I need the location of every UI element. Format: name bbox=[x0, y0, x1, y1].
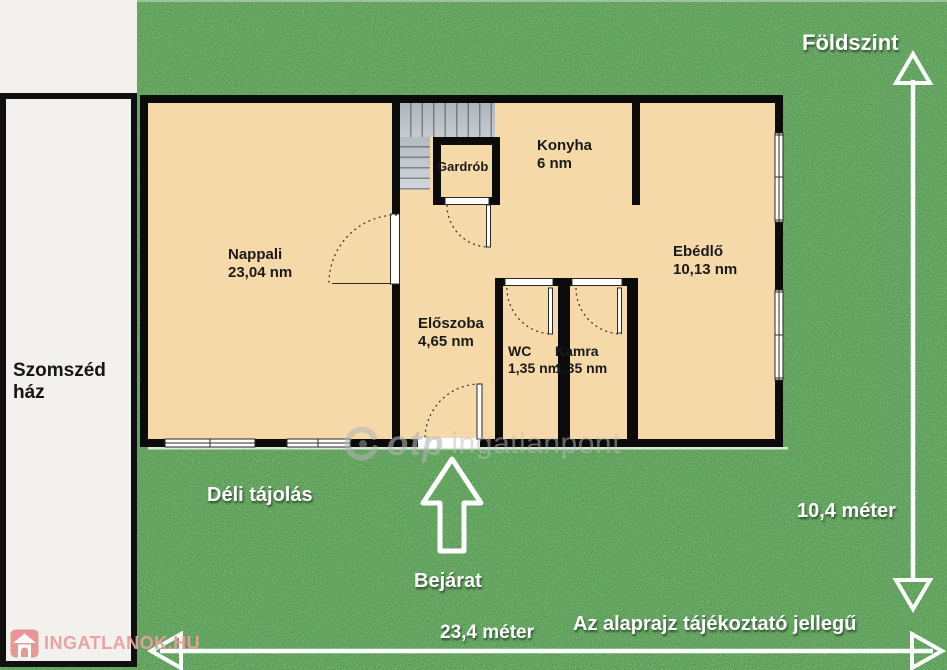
site-logo: INGATLANOK.HU bbox=[10, 629, 200, 658]
room-area: 23,04 nm bbox=[228, 264, 292, 282]
room-name: Kamra bbox=[555, 343, 607, 360]
room-label-gardrob: Gardrób bbox=[437, 159, 488, 175]
wall-nappali-bottom bbox=[392, 283, 400, 439]
room-area: 4,65 nm bbox=[418, 333, 484, 351]
house-icon bbox=[10, 629, 39, 658]
entrance-arrow-icon bbox=[423, 459, 481, 551]
room-area: 10,13 nm bbox=[673, 261, 737, 279]
entrance-label: Bejárat bbox=[414, 570, 482, 593]
floor-title: Földszint bbox=[802, 30, 899, 56]
watermark-brand: otp bbox=[387, 424, 444, 464]
wall-konyha-ebedlo bbox=[632, 103, 640, 205]
watermark-logo-icon bbox=[344, 426, 380, 462]
room-name: Előszoba bbox=[418, 315, 484, 333]
neighbor-house-label: Szomszéd ház bbox=[13, 360, 106, 404]
wall-kamra-right bbox=[627, 286, 638, 439]
room-name: Konyha bbox=[537, 137, 592, 155]
horizontal-measure-arrow bbox=[151, 634, 942, 668]
orientation-label: Déli tájolás bbox=[207, 484, 313, 507]
watermark: otp ingatlanpont bbox=[344, 424, 621, 464]
watermark-suffix: ingatlanpont bbox=[451, 427, 620, 461]
room-area: 6 nm bbox=[537, 155, 592, 173]
room-name: Ebédlő bbox=[673, 243, 737, 261]
room-name: Gardrób bbox=[437, 159, 488, 175]
wall-wc-kamra-top bbox=[495, 278, 638, 286]
room-label-kamra: Kamra 1,35 nm bbox=[555, 343, 607, 377]
left-white-area bbox=[0, 0, 137, 95]
room-area: 1,35 nm bbox=[508, 360, 560, 377]
room-name: Nappali bbox=[228, 246, 292, 264]
width-measure-label: 23,4 méter bbox=[440, 622, 534, 644]
room-label-nappali: Nappali 23,04 nm bbox=[228, 246, 292, 283]
room-label-ebedlo: Ebédlő 10,13 nm bbox=[673, 243, 737, 280]
stairs-lower-run bbox=[400, 137, 430, 190]
wall-nappali-top bbox=[392, 103, 400, 215]
disclaimer-label: Az alaprajz tájékoztató jellegű bbox=[573, 613, 856, 636]
room-name: WC bbox=[508, 343, 560, 360]
room-label-eloszoba: Előszoba 4,65 nm bbox=[418, 315, 484, 352]
site-logo-text: INGATLANOK.HU bbox=[44, 633, 200, 654]
stairs-upper-run bbox=[400, 103, 495, 137]
room-label-wc: WC 1,35 nm bbox=[508, 343, 560, 377]
wall-wc-left bbox=[495, 286, 503, 439]
floorplan-image: Szomszéd ház bbox=[0, 0, 947, 670]
room-area: 1,35 nm bbox=[555, 360, 607, 377]
room-label-konyha: Konyha 6 nm bbox=[537, 137, 592, 174]
vertical-measure-arrow bbox=[896, 54, 930, 609]
height-measure-label: 10,4 méter bbox=[797, 500, 896, 523]
